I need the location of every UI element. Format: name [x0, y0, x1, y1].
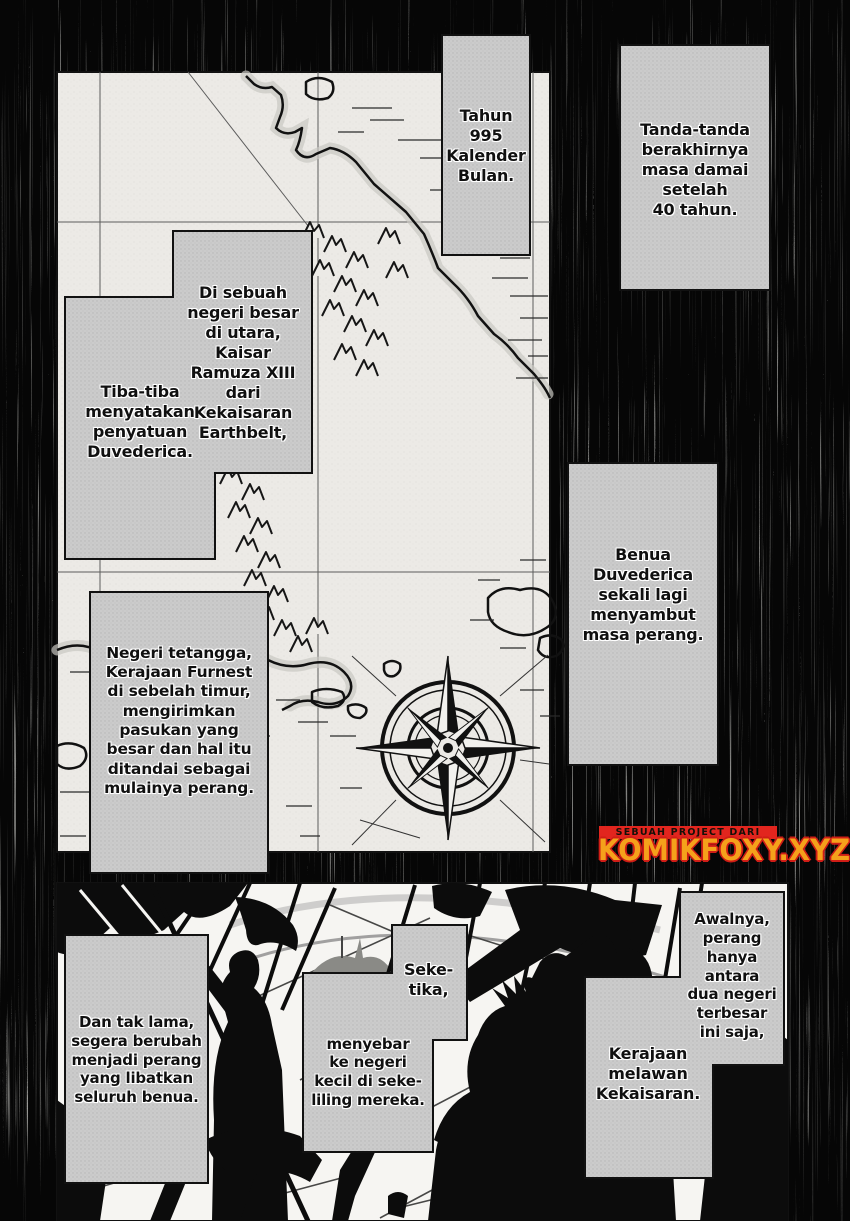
- caption-menyebar: menyebar ke negeri kecil di seke- liling…: [303, 1016, 433, 1128]
- caption-tanda: Tanda-tanda berakhirnya masa damai setel…: [620, 95, 770, 245]
- caption-benua: Benua Duvederica sekali lagi menyambut m…: [568, 525, 718, 665]
- banner-site-link[interactable]: KOMIKFOXY.XYZ: [598, 833, 850, 867]
- caption-tahun: Tahun 995 Kalender Bulan.: [442, 78, 530, 214]
- caption-tiba-tiba: Tiba-tiba menyatakan penyatuan Duvederic…: [67, 368, 213, 476]
- caption-dan-tak-lama: Dan tak lama, segera berubah menjadi per…: [65, 998, 208, 1122]
- caption-negeri: Negeri tetangga, Kerajaan Furnest di seb…: [90, 630, 268, 812]
- manga-page: Tahun 995 Kalender Bulan. Tanda-tanda be…: [0, 0, 850, 1221]
- caption-seketika: Seke- tika,: [392, 943, 465, 1017]
- caption-kerajaan: Kerajaan melawan Kekaisaran.: [585, 1036, 711, 1112]
- caption-awalnya: Awalnya, perang hanya antara dua negeri …: [682, 900, 782, 1052]
